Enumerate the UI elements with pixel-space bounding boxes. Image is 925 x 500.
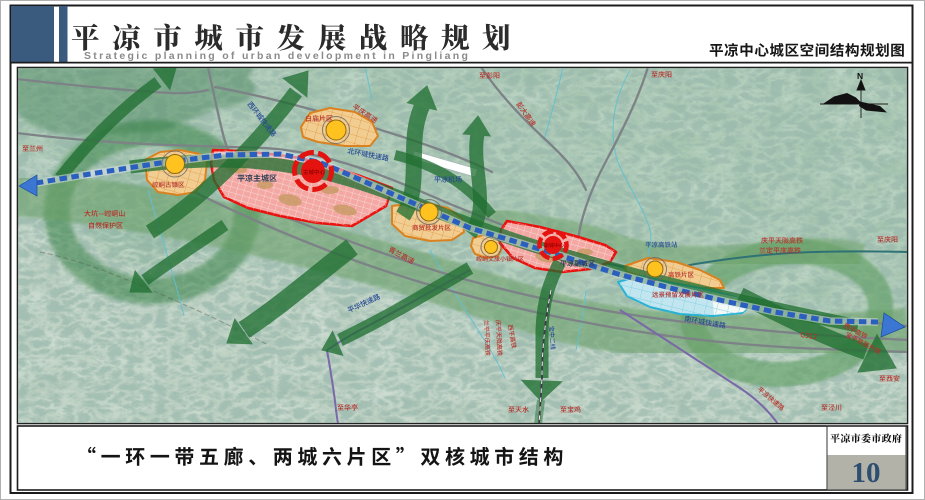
svg-text:10: 10 <box>852 457 881 489</box>
svg-text:N: N <box>857 71 863 81</box>
svg-text:Strategic planning of urban de: Strategic planning of urban development … <box>84 50 470 62</box>
